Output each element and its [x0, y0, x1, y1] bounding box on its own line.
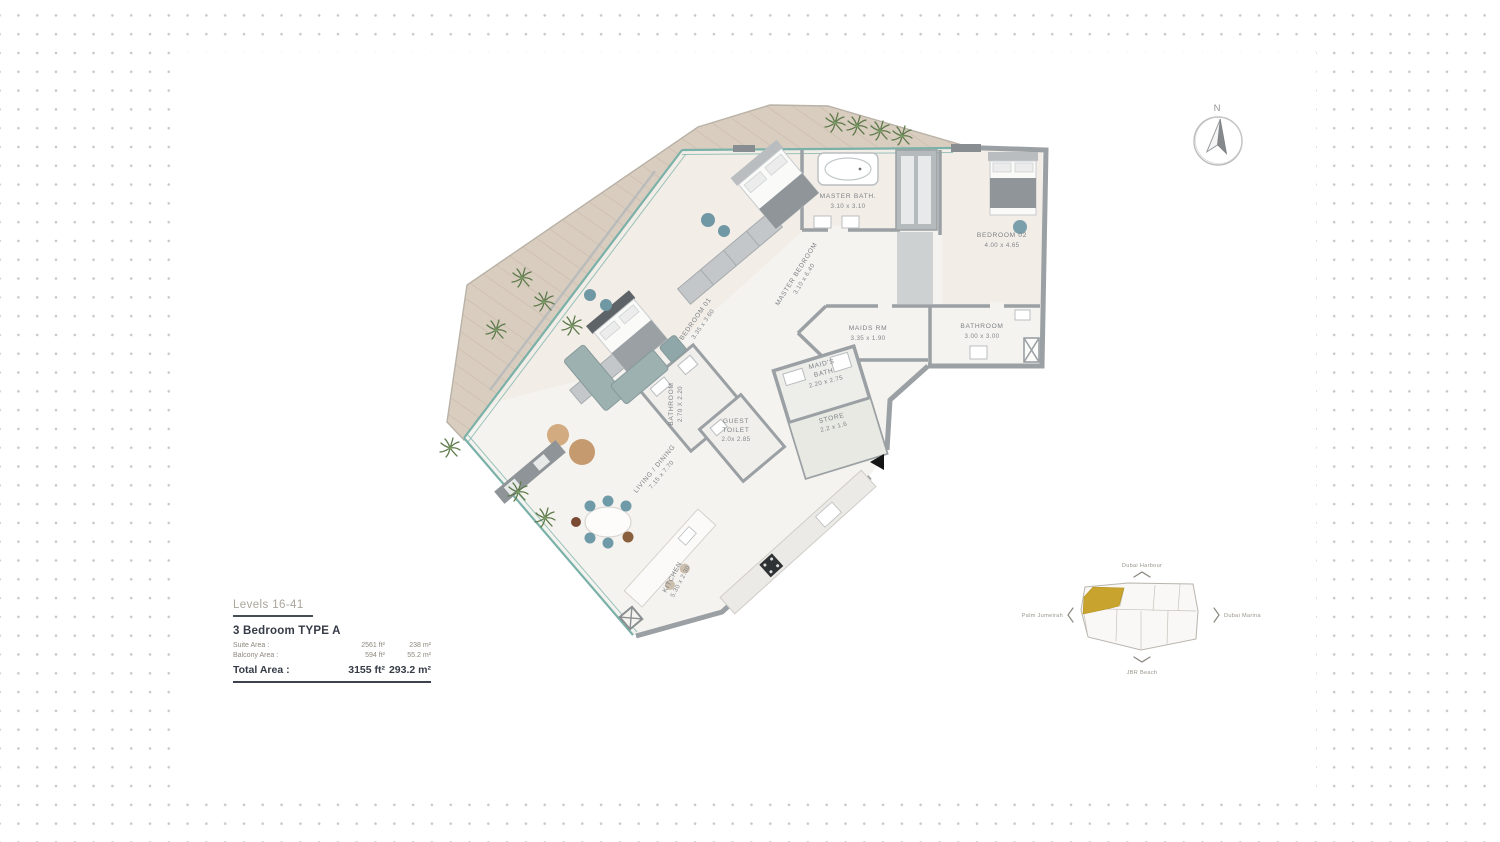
- svg-text:BATHROOM: BATHROOM: [668, 382, 675, 425]
- svg-text:MAIDS RM: MAIDS RM: [849, 325, 888, 332]
- svg-text:BATHROOM: BATHROOM: [960, 323, 1003, 330]
- area-m-value: 55.2 m²: [385, 651, 431, 661]
- area-label: Suite Area :: [233, 641, 333, 651]
- svg-text:3.35 x 1.90: 3.35 x 1.90: [850, 335, 885, 342]
- svg-text:BEDROOM 02: BEDROOM 02: [977, 232, 1027, 239]
- page-background: MASTER BATH. 3.10 x 3.10 MASTER BEDROOM …: [0, 0, 1500, 842]
- legend: Levels 16-41 3 Bedroom TYPE A Suite Area…: [233, 599, 431, 683]
- north-label: N: [1214, 103, 1221, 114]
- svg-text:3.10 x 3.10: 3.10 x 3.10: [830, 203, 865, 210]
- chevron-down-icon: [1134, 657, 1150, 662]
- map-label-right: Dubai Marina: [1224, 613, 1261, 619]
- chevron-left-icon: [1068, 608, 1073, 622]
- svg-text:TOILET: TOILET: [722, 427, 749, 434]
- svg-text:2.70 X 2.20: 2.70 X 2.20: [677, 386, 684, 422]
- floor-plan: MASTER BATH. 3.10 x 3.10 MASTER BEDROOM …: [430, 90, 1070, 670]
- area-m-value: 238 m²: [385, 641, 431, 651]
- map-label-left: Palm Jumeirah: [1022, 613, 1063, 619]
- room-label-guest-toilet: GUEST TOILET 2.0x 2.85: [721, 418, 750, 443]
- door-gap: [878, 302, 892, 310]
- levels-underline: [233, 615, 313, 617]
- map-label-top: Dubai Harbour: [1122, 563, 1162, 569]
- area-ft-value: 2561 ft²: [333, 641, 385, 651]
- compass-needle-icon: [1207, 118, 1230, 154]
- svg-text:GUEST: GUEST: [723, 418, 749, 425]
- total-m-value: 293.2 m²: [385, 664, 431, 676]
- area-row-balcony: Balcony Area : 594 ft² 55.2 m²: [233, 651, 431, 661]
- area-row-suite: Suite Area : 2561 ft² 238 m²: [233, 641, 431, 651]
- area-ft-value: 594 ft²: [333, 651, 385, 661]
- site-map: Dubai Harbour Dubai Marina JBR Beach Pal…: [1020, 553, 1270, 685]
- map-label-bottom: JBR Beach: [1127, 670, 1158, 676]
- total-label: Total Area :: [233, 664, 333, 676]
- area-row-total: Total Area : 3155 ft² 293.2 m²: [233, 664, 431, 676]
- door-gap: [990, 302, 1004, 310]
- legend-bottom-rule: [233, 681, 431, 683]
- svg-text:3.00 x 3.00: 3.00 x 3.00: [964, 333, 999, 340]
- total-ft-value: 3155 ft²: [333, 664, 385, 676]
- pouf: [569, 439, 595, 465]
- pouf: [547, 424, 569, 446]
- svg-text:MASTER BATH.: MASTER BATH.: [820, 193, 877, 200]
- compass-rose: N: [1188, 95, 1248, 177]
- unit-type-label: 3 Bedroom TYPE A: [233, 625, 431, 637]
- area-label: Balcony Area :: [233, 651, 333, 661]
- svg-text:4.00 x 4.65: 4.00 x 4.65: [984, 242, 1019, 249]
- walkin-closet: [896, 150, 937, 304]
- chevron-up-icon: [1134, 572, 1150, 577]
- levels-label: Levels 16-41: [233, 599, 431, 614]
- svg-text:2.0x 2.85: 2.0x 2.85: [721, 436, 750, 443]
- chevron-right-icon: [1214, 608, 1219, 622]
